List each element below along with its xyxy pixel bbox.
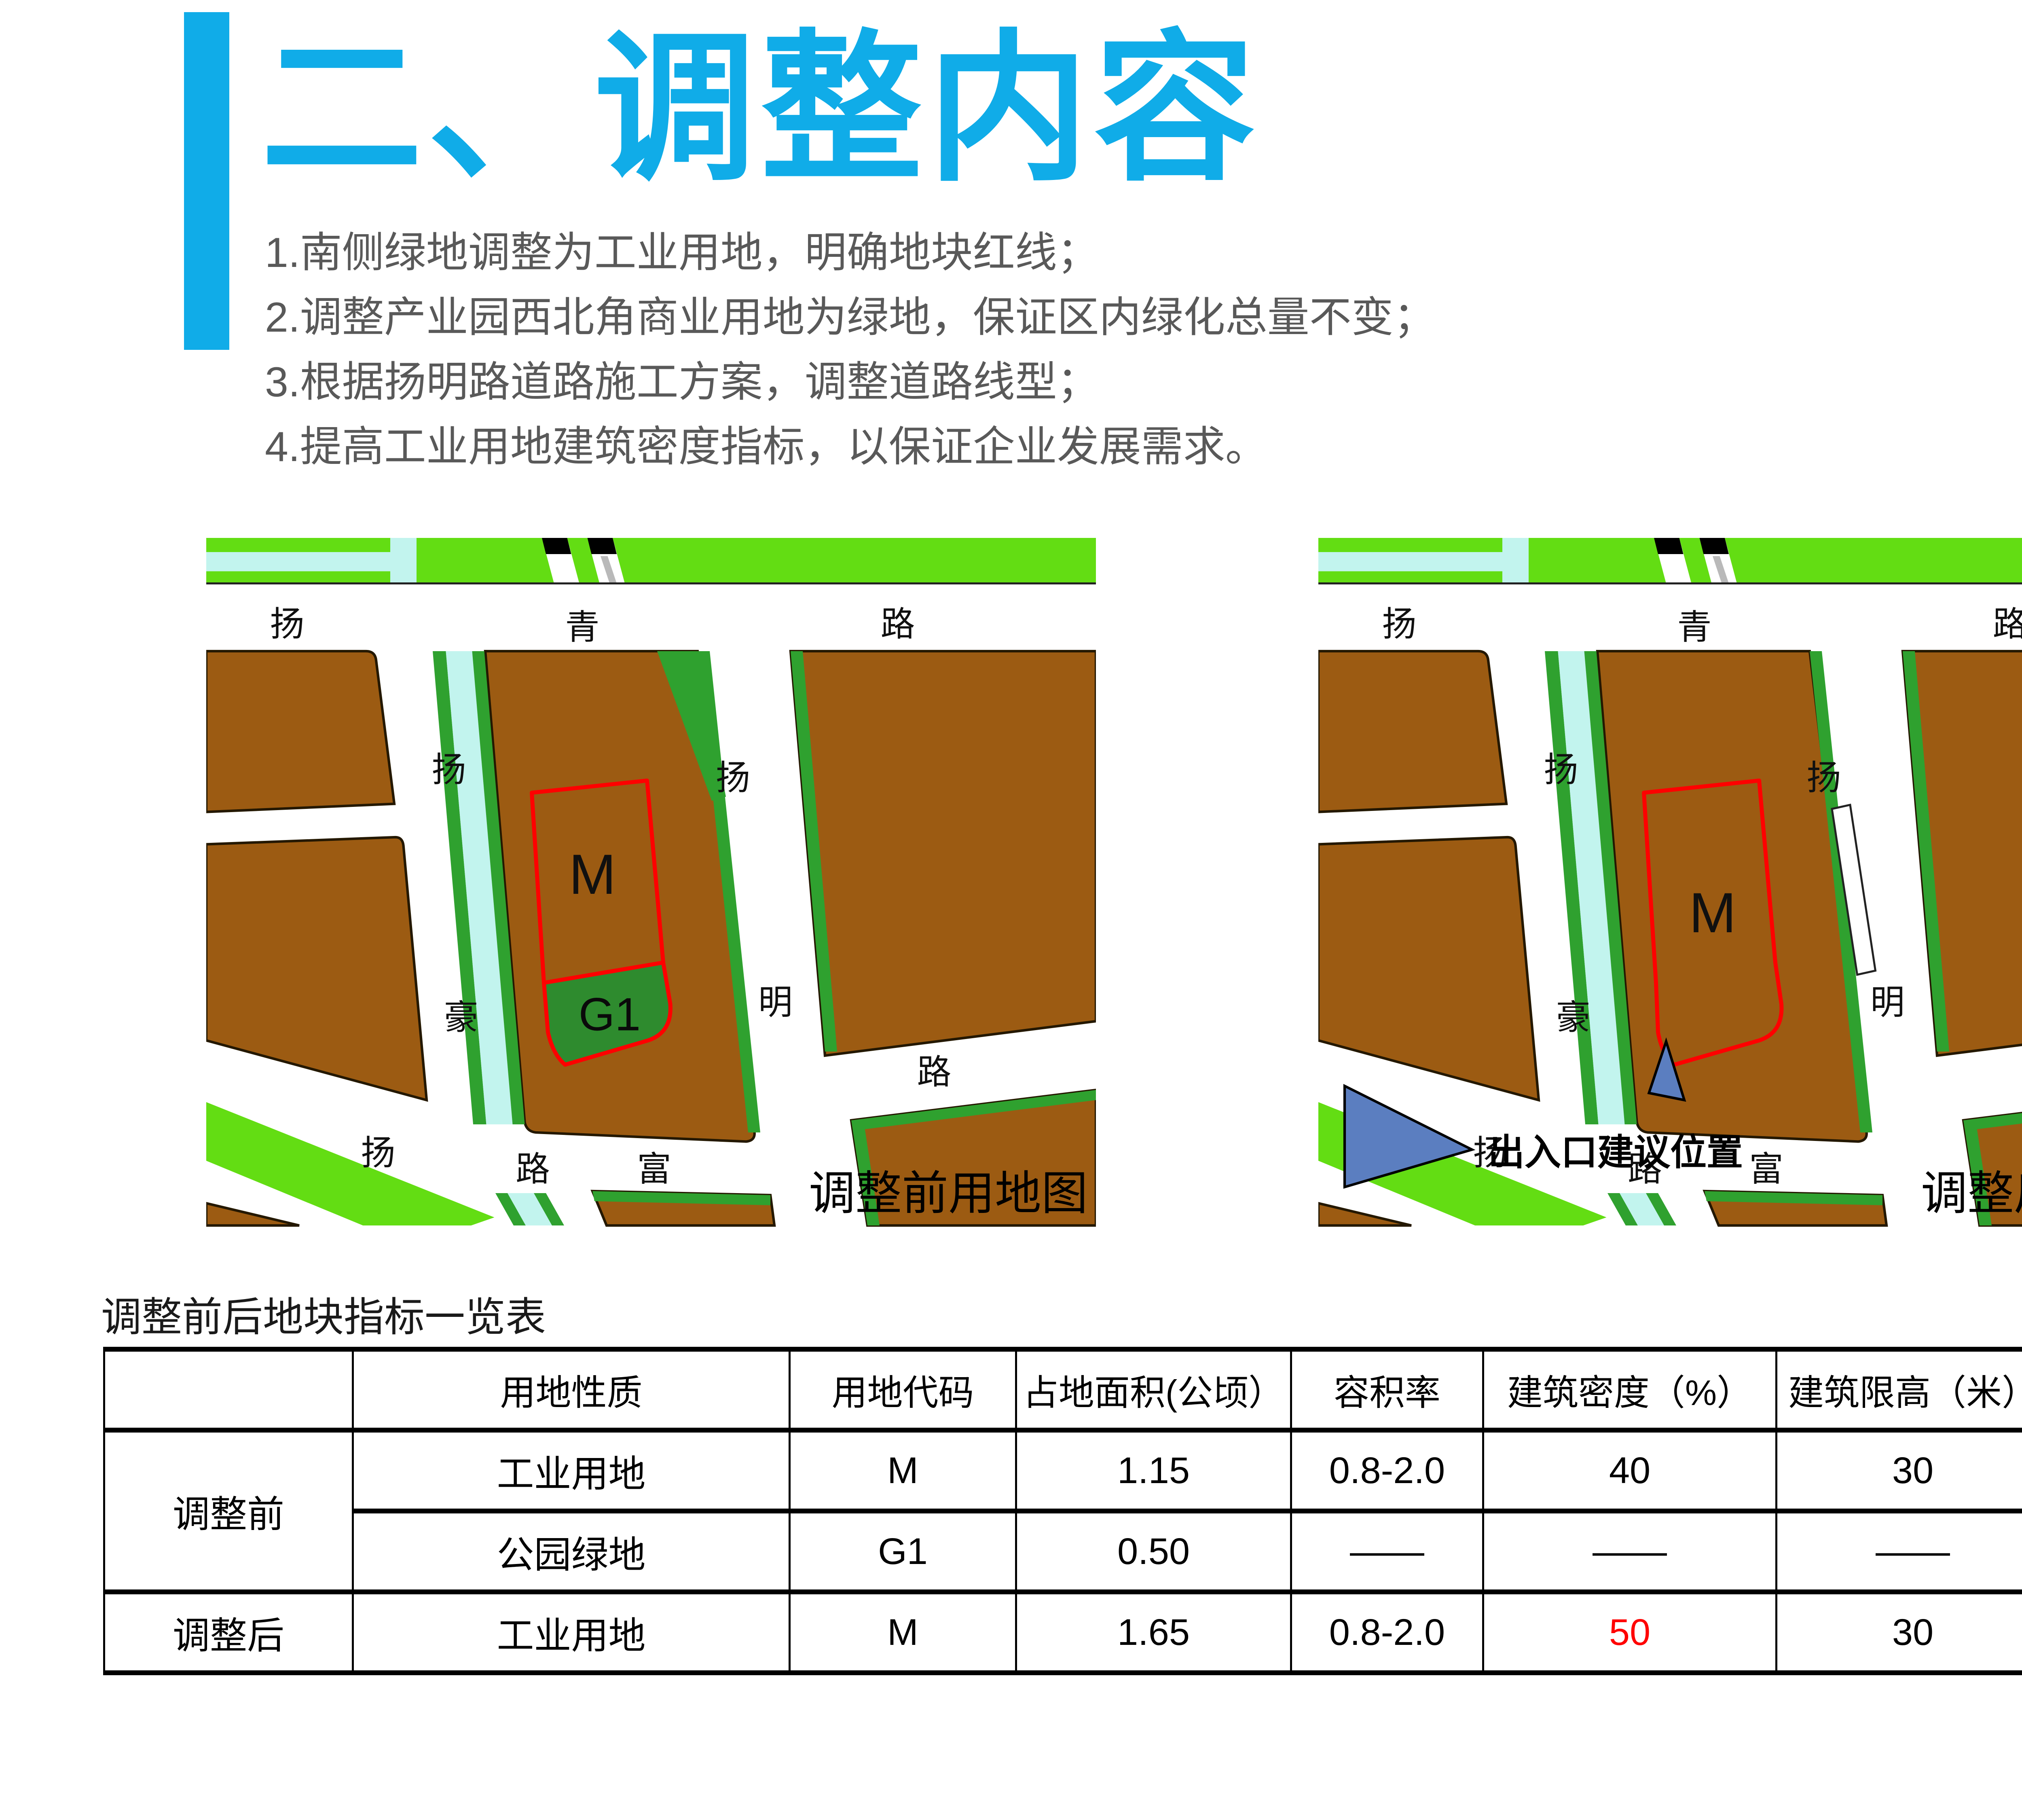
table-header-cell — [104, 1349, 353, 1430]
title-accent-bar — [184, 12, 229, 350]
table-cell: 1.15 — [1016, 1430, 1291, 1511]
indicator-table: 用地性质 用地代码 占地面积(公顷） 容积率 建筑密度（%） 建筑限高（米） 绿… — [103, 1347, 2022, 1675]
parcel-g1-label: G1 — [579, 989, 641, 1041]
table-cell: 工业用地 — [353, 1430, 790, 1511]
bridge-stripe-cap — [1654, 538, 1684, 554]
page-title: 二、调整内容 — [261, 16, 1261, 202]
road-label: 扬 — [1806, 759, 1841, 798]
table-header-cell: 用地代码 — [790, 1349, 1016, 1430]
city-block — [206, 651, 394, 812]
band-edge-line — [1318, 582, 2022, 584]
table-cell: 30 — [1777, 1592, 2022, 1673]
road-label: 青 — [565, 608, 599, 647]
table-cell: G1 — [790, 1511, 1016, 1592]
road-label: 路 — [880, 605, 915, 644]
road-label: 青 — [1677, 608, 1711, 647]
table-header-cell: 占地面积(公顷） — [1016, 1349, 1291, 1430]
road-label: 明 — [758, 984, 793, 1022]
table-cell: 0.8-2.0 — [1291, 1430, 1483, 1511]
bridge-stripe-cap — [1700, 538, 1729, 554]
road-label: 豪 — [1556, 999, 1590, 1037]
canal-horizontal — [1318, 552, 1527, 571]
road-label: 路 — [1992, 605, 2022, 644]
road-label: 扬 — [270, 605, 304, 644]
canal-vertical-top — [1502, 538, 1529, 584]
table-header-cell: 容积率 — [1291, 1349, 1483, 1430]
road-label: 富 — [1749, 1150, 1783, 1189]
adjustment-points: 1.南侧绿地调整为工业用地，明确地块红线； 2.调整产业园西北角商业用地为绿地，… — [265, 220, 2022, 479]
land-use-map-after: 扬 青 路 扬 豪 路 扬 明 路 富 扬 M 出入口建议位置 调整后用地图 — [1318, 536, 2022, 1227]
bridge-stripe-cap — [588, 538, 617, 554]
table-row: 调整后 工业用地 M 1.65 0.8-2.0 50 30 25 — [104, 1592, 2022, 1673]
map-caption-before: 调整前用地图 — [809, 1168, 1088, 1219]
road-label: 路 — [917, 1053, 951, 1092]
road-label: 扬 — [361, 1134, 395, 1172]
table-cell-highlighted: 50 — [1483, 1592, 1777, 1673]
road-label: 扬 — [716, 759, 750, 798]
road-label: 豪 — [444, 999, 478, 1037]
point-1: 1.南侧绿地调整为工业用地，明确地块红线； — [265, 220, 2022, 285]
table-cell: —— — [1291, 1511, 1483, 1592]
road-label: 路 — [516, 1150, 550, 1189]
land-use-map-before: 扬 青 路 扬 豪 路 扬 明 路 富 扬 M G1 调整前用地图 — [206, 536, 1096, 1227]
legend-label: 出入口建议位置 — [1488, 1132, 1743, 1173]
slide: { "page": { "number": "49" }, "header": … — [0, 0, 2022, 1820]
table-cell: 工业用地 — [353, 1592, 790, 1673]
table-header-cell: 建筑密度（%） — [1483, 1349, 1777, 1430]
point-3: 3.根据扬明路道路施工方案，调整道路线型； — [265, 350, 2022, 415]
table-row: 公园绿地 G1 0.50 —— —— —— —— — [104, 1511, 2022, 1592]
table-cell: —— — [1777, 1511, 2022, 1592]
road-label: 明 — [1870, 984, 1905, 1022]
city-block — [791, 651, 1096, 1056]
point-4: 4.提高工业用地建筑密度指标，以保证企业发展需求。 — [265, 415, 2022, 479]
road-label: 扬 — [431, 751, 466, 789]
table-cell: 1.65 — [1016, 1592, 1291, 1673]
table-cell: M — [790, 1430, 1016, 1511]
table-cell: —— — [1483, 1511, 1777, 1592]
table-header-row: 用地性质 用地代码 占地面积(公顷） 容积率 建筑密度（%） 建筑限高（米） 绿… — [104, 1349, 2022, 1430]
table-header-cell: 用地性质 — [353, 1349, 790, 1430]
table-cell: 0.50 — [1016, 1511, 1291, 1592]
table-cell: 30 — [1777, 1430, 2022, 1511]
road-label: 扬 — [1382, 605, 1416, 644]
bridge-stripe-cap — [542, 538, 571, 554]
table-header-cell: 建筑限高（米） — [1777, 1349, 2022, 1430]
parcel-m-label: M — [1689, 881, 1736, 944]
road-label: 扬 — [1544, 751, 1578, 789]
map-caption-after: 调整后用地图 — [1921, 1168, 2022, 1219]
point-2: 2.调整产业园西北角商业用地为绿地，保证区内绿化总量不变； — [265, 285, 2022, 350]
row-group-cell: 调整前 — [104, 1430, 353, 1592]
canal-vertical-top — [390, 538, 417, 584]
parcel-m-label: M — [569, 842, 616, 906]
canal-horizontal — [206, 552, 415, 571]
row-group-cell: 调整后 — [104, 1592, 353, 1673]
table-cell: 公园绿地 — [353, 1511, 790, 1592]
table-title: 调整前后地块指标一览表 — [101, 1284, 546, 1343]
table-cell: 40 — [1483, 1430, 1777, 1511]
table-row: 调整前 工业用地 M 1.15 0.8-2.0 40 30 25 — [104, 1430, 2022, 1511]
table-cell: M — [790, 1592, 1016, 1673]
road-label: 富 — [637, 1150, 671, 1189]
city-block — [1318, 651, 1506, 812]
band-edge-line — [206, 582, 1096, 584]
table-cell: 0.8-2.0 — [1291, 1592, 1483, 1673]
